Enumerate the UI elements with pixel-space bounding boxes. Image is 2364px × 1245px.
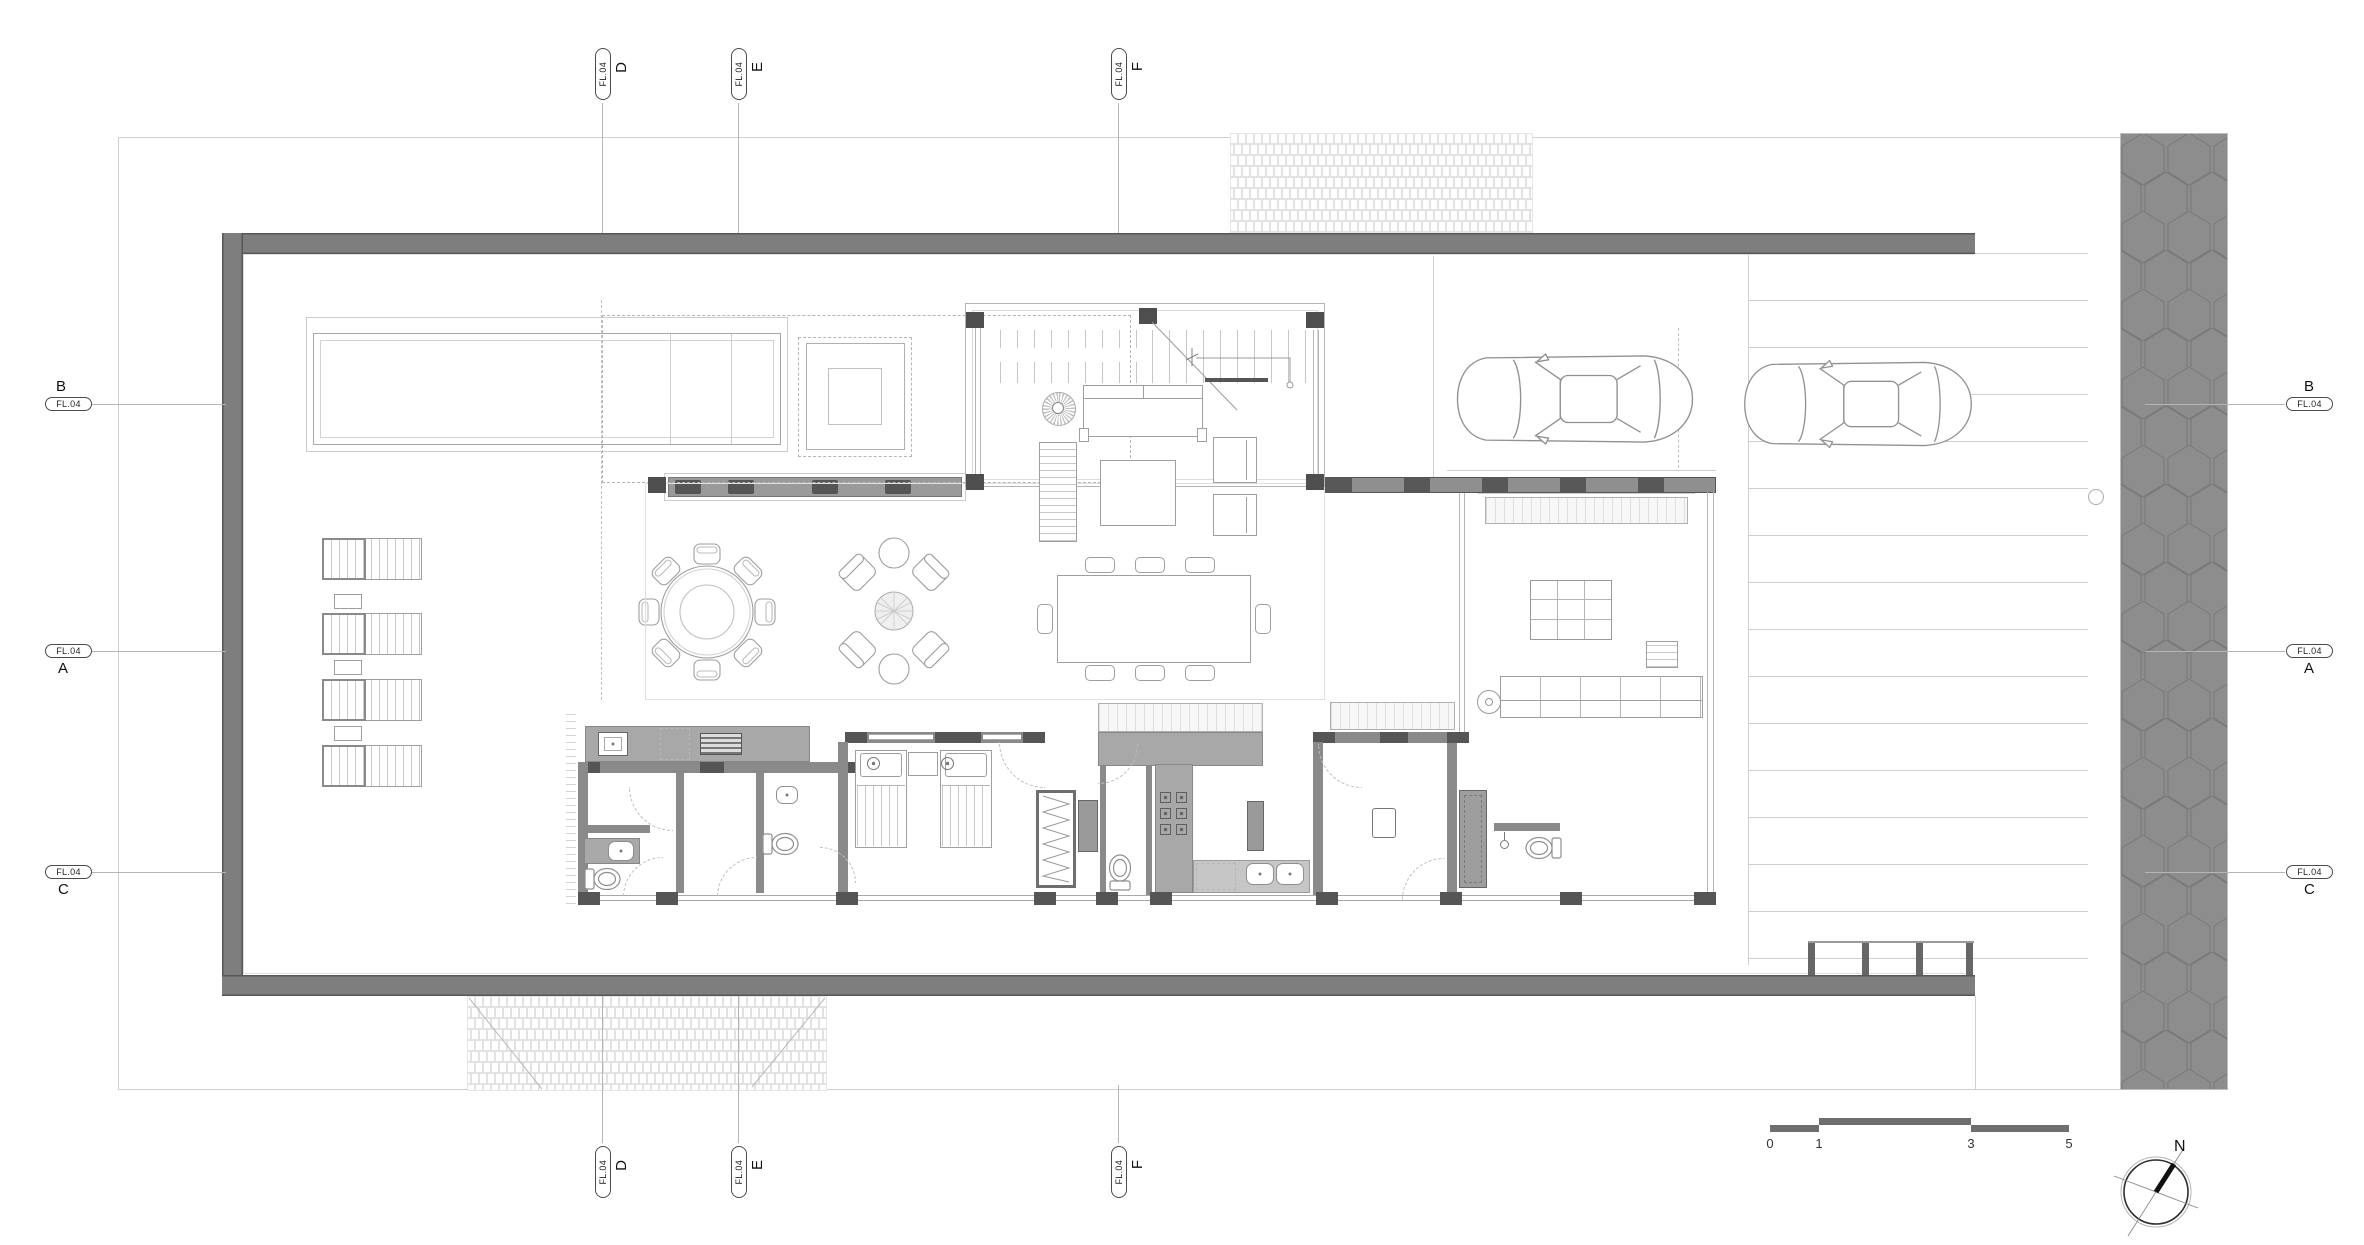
dining-chair <box>1255 604 1271 634</box>
sun-lounger-frame <box>322 538 366 580</box>
grid-bubble-bottom-E: FL.04 <box>731 1146 747 1198</box>
scale-label-5: 5 <box>2062 1136 2076 1151</box>
grid-bubble-top-E: FL.04 <box>731 48 747 100</box>
coffee-table <box>1100 460 1176 526</box>
cooktop-burner <box>1176 808 1187 819</box>
grid-bubble-right-A: FL.04 <box>2286 644 2333 658</box>
bed-blanket <box>942 785 990 846</box>
wall-post <box>1034 892 1056 905</box>
grid-line-C <box>2145 872 2285 873</box>
wardrobe-cabinet-dashed <box>1464 795 1482 883</box>
shower-stem <box>1504 832 1505 840</box>
boundary-wall-south <box>222 975 1975 996</box>
wardrobe <box>1485 497 1688 524</box>
grid-line-A <box>92 651 226 652</box>
wall-post <box>1694 892 1716 905</box>
scale-bar-segment <box>1770 1125 1819 1132</box>
grid-line-F <box>1118 1085 1119 1143</box>
side-table <box>334 726 362 741</box>
dining-chair <box>1135 557 1165 573</box>
grid-letter-right-B: B <box>2304 378 2314 395</box>
dining-chair <box>1185 557 1215 573</box>
scale-bar-segment <box>1819 1118 1971 1125</box>
outdoor-sink-basin <box>604 737 622 751</box>
closet-door-leaf <box>1078 800 1098 852</box>
gate-rail <box>1808 941 1974 943</box>
armchair-back <box>1246 440 1256 480</box>
washbasin <box>776 786 798 804</box>
wall-post <box>935 732 981 743</box>
grid-bubble-label: FL.04 <box>1114 1160 1124 1185</box>
grid-line-D <box>602 103 603 233</box>
cooktop-burner <box>1176 792 1187 803</box>
wall-post <box>1096 892 1118 905</box>
gate-post <box>1808 943 1815 975</box>
cooktop-burner <box>1176 824 1187 835</box>
wall-post <box>1150 892 1172 905</box>
grid-line-E <box>738 996 739 1143</box>
grid-bubble-label: FL.04 <box>734 62 744 87</box>
grid-bubble-right-C: FL.04 <box>2286 865 2333 879</box>
wing-roof-line <box>1447 470 1716 471</box>
grid-bubble-top-D: FL.04 <box>595 48 611 100</box>
cooktop-burner <box>1160 792 1171 803</box>
armchair-back <box>1246 497 1256 533</box>
round-side-table-center <box>1485 698 1493 706</box>
glass-wall-line <box>1713 492 1714 905</box>
wardrobe-shelf-line <box>1478 493 1695 494</box>
rug <box>1039 442 1077 542</box>
cooktop-burner <box>1160 808 1171 819</box>
north-label: N <box>2174 1138 2186 1156</box>
glass-wall-line <box>1707 492 1708 905</box>
grid-letter-right-A: A <box>2304 660 2314 677</box>
hall-bench <box>1330 702 1455 730</box>
grid-line-E <box>738 103 739 233</box>
boundary-wall-north <box>222 233 1975 254</box>
sun-lounger-frame <box>322 679 366 721</box>
grid-line-F <box>1118 103 1119 233</box>
window <box>869 734 933 740</box>
kitchen-sink <box>1276 863 1304 885</box>
dining-chair <box>1135 665 1165 681</box>
grid-letter-top-D: D <box>613 62 630 73</box>
grid-line-B <box>92 404 226 405</box>
car <box>1452 352 1698 446</box>
exterior-step-ticks <box>566 712 576 904</box>
square-side-table <box>1646 641 1678 668</box>
column <box>648 477 666 493</box>
carport-edge-line <box>1433 256 1434 477</box>
wall-post <box>836 892 858 905</box>
dishwasher-dashed <box>1196 863 1236 890</box>
utility-manhole <box>2088 489 2104 505</box>
sun-lounger-frame <box>322 745 366 787</box>
scale-label-3: 3 <box>1964 1136 1978 1151</box>
grid-letter-bottom-D: D <box>613 1160 630 1171</box>
kitchen-deck <box>1098 703 1263 732</box>
grid-bubble-right-B: FL.04 <box>2286 397 2333 411</box>
toilet <box>1107 853 1133 891</box>
grid-letter-top-F: F <box>1129 62 1146 71</box>
side-table <box>334 660 362 675</box>
grid-letter-left-C: C <box>58 881 69 898</box>
column <box>1306 474 1324 490</box>
pantry-door-leaf <box>1247 801 1264 851</box>
grid-letter-bottom-E: E <box>749 1160 766 1170</box>
grid-bubble-bottom-D: FL.04 <box>595 1146 611 1198</box>
grid-bubble-left-A: FL.04 <box>45 644 92 658</box>
grid-letter-right-C: C <box>2304 881 2315 898</box>
dining-chair <box>1085 557 1115 573</box>
grid-bubble-label: FL.04 <box>598 1160 608 1185</box>
wall <box>578 825 650 833</box>
column <box>966 312 984 328</box>
gate-post <box>1916 943 1923 975</box>
grid-letter-left-B: B <box>56 378 66 395</box>
wall-post <box>700 762 724 773</box>
counter-module-dashed <box>660 728 690 760</box>
wall-post <box>1316 892 1338 905</box>
scale-label-0: 0 <box>1763 1136 1777 1151</box>
dining-chair <box>1085 665 1115 681</box>
glass-wall-line <box>980 318 981 480</box>
kitchen-sink <box>1246 863 1274 885</box>
grid-bubble-top-F: FL.04 <box>1111 48 1127 100</box>
bedside-lamp <box>941 757 954 770</box>
side-table <box>334 594 362 609</box>
grid-bubble-label: FL.04 <box>1114 62 1124 87</box>
wall-post <box>578 892 600 905</box>
glass-wall-line <box>1464 493 1465 743</box>
closet-hangers <box>1040 794 1072 884</box>
wall-post <box>1447 732 1469 743</box>
bedside-lamp <box>867 757 880 770</box>
entry-edge-line <box>1975 996 1976 1090</box>
glass-wall-line <box>975 318 976 480</box>
grid-bubble-label: FL.04 <box>2297 646 2322 656</box>
grid-letter-bottom-F: F <box>1129 1160 1146 1169</box>
north-arrow-icon <box>2108 1142 2204 1238</box>
column <box>966 474 984 490</box>
grid-bubble-label: FL.04 <box>2297 399 2322 409</box>
wall <box>1447 743 1457 905</box>
decor-fan-hub <box>1052 402 1064 414</box>
closet-wall <box>1325 477 1716 493</box>
wall <box>1313 742 1323 895</box>
glass-wall-line <box>1459 493 1460 743</box>
toilet <box>584 866 622 892</box>
grid-bubble-label: FL.04 <box>56 867 81 877</box>
sun-lounger-frame <box>322 613 366 655</box>
family-sofa-front <box>1500 700 1703 718</box>
nightstand <box>908 752 938 776</box>
bed-blanket <box>857 785 905 846</box>
grid-bubble-left-B: FL.04 <box>45 397 92 411</box>
driveway-paving-hatch-bottom <box>467 996 827 1091</box>
dining-table <box>1057 575 1251 663</box>
driveway-paving-hatch-top <box>1230 133 1533 233</box>
wall-post <box>1380 732 1408 743</box>
grid-letter-left-A: A <box>58 660 68 677</box>
scale-label-1: 1 <box>1812 1136 1826 1151</box>
grill <box>700 733 742 755</box>
grid-line-D <box>602 996 603 1143</box>
toilet <box>762 831 800 857</box>
shower-head <box>1500 840 1509 849</box>
wall <box>1494 823 1560 831</box>
grid-bubble-label: FL.04 <box>56 399 81 409</box>
scale-bar-segment <box>1971 1125 2069 1132</box>
wall <box>676 773 684 893</box>
sofa-back-divider <box>1143 385 1144 399</box>
gate-post <box>1966 943 1973 975</box>
wall-post <box>1560 892 1582 905</box>
grid-bubble-label: FL.04 <box>734 1160 744 1185</box>
toilet <box>1524 835 1562 861</box>
floor-plan-sheet: FL.04 D FL.04 E FL.04 F FL.04 D FL.04 E … <box>0 0 2364 1245</box>
car <box>1740 358 1976 450</box>
grid-bubble-label: FL.04 <box>56 646 81 656</box>
cooktop-burner <box>1160 824 1171 835</box>
sofa-arm <box>1197 428 1207 442</box>
refrigerator <box>1372 808 1396 838</box>
road-strip-hex-paving <box>2120 133 2228 1090</box>
boundary-wall-west <box>222 233 243 996</box>
grid-bubble-label: FL.04 <box>598 62 608 87</box>
grid-bubble-left-C: FL.04 <box>45 865 92 879</box>
dining-chair <box>1037 604 1053 634</box>
grid-table <box>1530 580 1612 640</box>
sofa-arm <box>1079 428 1089 442</box>
grid-line-C <box>92 872 226 873</box>
grid-line-A <box>2145 651 2285 652</box>
grid-bubble-label: FL.04 <box>2297 867 2322 877</box>
gate-post <box>1862 943 1869 975</box>
dining-chair <box>1185 665 1215 681</box>
grid-letter-top-E: E <box>749 62 766 72</box>
grid-bubble-bottom-F: FL.04 <box>1111 1146 1127 1198</box>
window <box>983 734 1021 740</box>
wall-post <box>845 732 867 743</box>
washbasin <box>608 841 634 861</box>
grid-line-B <box>2145 404 2285 405</box>
